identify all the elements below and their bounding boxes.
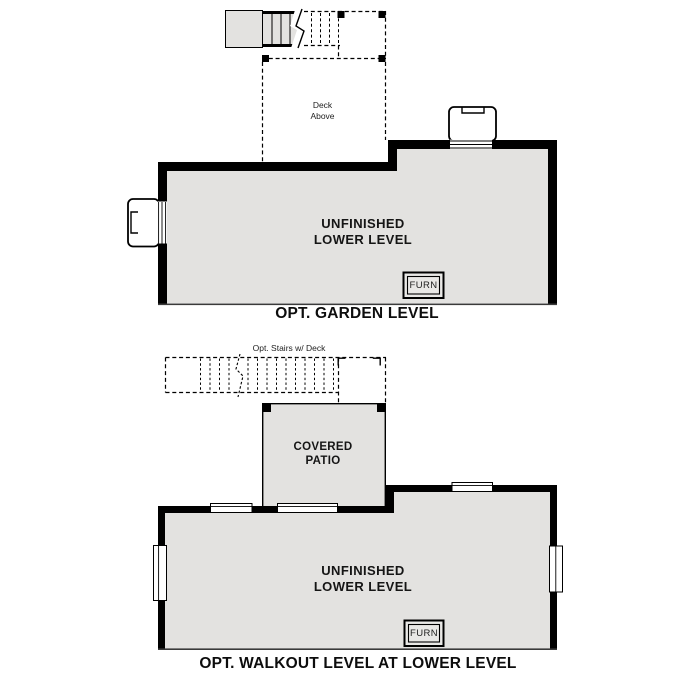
stair-landing [226,11,263,48]
walkout-room-label: UNFINISHED LOWER LEVEL [253,563,473,594]
deck-corner-mark [373,358,380,365]
deck-corner-mark [338,358,345,365]
garden-left-window-well [128,199,167,247]
garden-stairs [226,9,309,48]
covered-patio-label: COVERED PATIO [263,440,383,468]
deck-above-line1: Deck [272,100,373,111]
deck-above-label: Deck Above [272,100,373,122]
deck-post [338,11,345,18]
covered-patio-line2: PATIO [263,454,383,468]
covered-patio-line1: COVERED [263,440,383,454]
garden-level-title: OPT. GARDEN LEVEL [177,305,537,323]
garden-room-label: UNFINISHED LOWER LEVEL [253,216,473,247]
window [211,504,253,513]
garden-level-plan [128,9,557,305]
walkout-room-line2: LOWER LEVEL [253,579,473,595]
deck-post [379,11,386,18]
walkout-level-plan [154,354,563,650]
dashed-treads [201,359,334,392]
garden-room-line2: LOWER LEVEL [253,232,473,248]
opt-stairs-label: Opt. Stairs w/ Deck [214,343,364,354]
window [278,504,338,513]
walkout-dashed-stairs [166,354,387,403]
stair-break [232,359,247,392]
window [452,483,493,492]
patio-post [262,403,271,412]
walkout-room-line1: UNFINISHED [253,563,473,579]
foundation-line [158,648,557,650]
garden-room-line1: UNFINISHED [253,216,473,232]
garden-top-window-well [449,107,496,149]
patio-post [377,403,386,412]
walkout-furnace-label: FURN [404,628,444,639]
deck-above-line2: Above [272,111,373,122]
garden-furnace-label: FURN [403,280,444,291]
floorplan-document: Deck Above UNFINISHED LOWER LEVEL FURN O… [0,0,687,687]
window [154,546,167,601]
deck-post [379,55,386,62]
walkout-level-title: OPT. WALKOUT LEVEL AT LOWER LEVEL [138,655,578,673]
deck-post [262,55,269,62]
